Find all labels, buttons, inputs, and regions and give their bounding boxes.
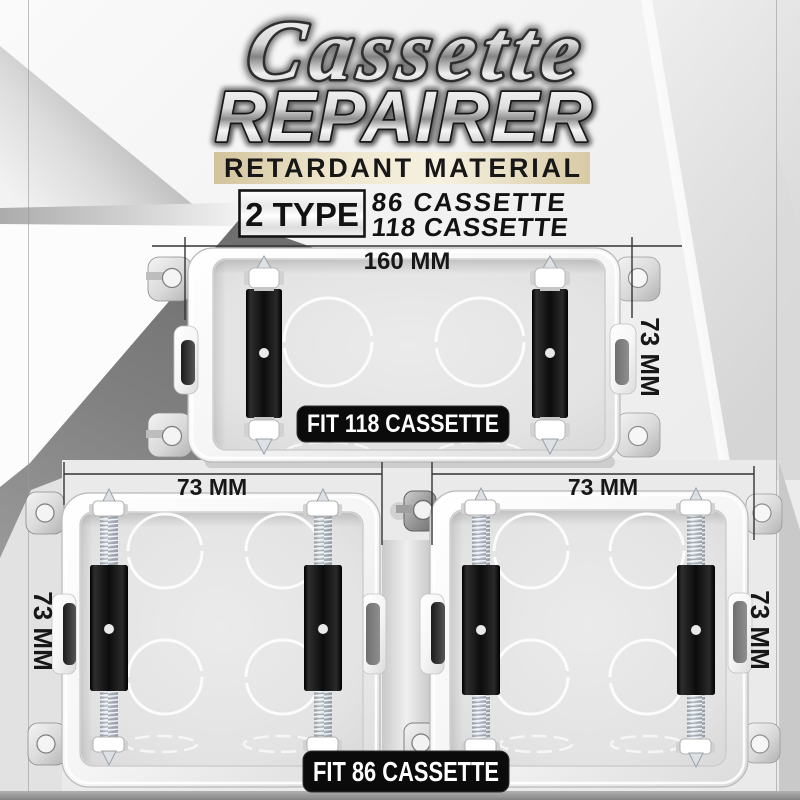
svg-text:FIT 86 CASSETTE: FIT 86 CASSETTE xyxy=(313,756,499,787)
svg-text:73 MM: 73 MM xyxy=(635,317,665,396)
svg-text:118 CASSETTE: 118 CASSETTE xyxy=(370,212,569,242)
svg-text:73 MM: 73 MM xyxy=(28,591,58,670)
svg-text:FIT 118 CASSETTE: FIT 118 CASSETTE xyxy=(307,410,499,438)
svg-text:73 MM: 73 MM xyxy=(745,590,775,669)
svg-text:73 MM: 73 MM xyxy=(177,474,247,500)
svg-text:2 TYPE: 2 TYPE xyxy=(245,196,359,233)
svg-text:RETARDANT MATERIAL: RETARDANT MATERIAL xyxy=(224,153,580,183)
svg-text:REPAIRER: REPAIRER xyxy=(215,78,593,157)
svg-text:160 MM: 160 MM xyxy=(364,248,451,275)
svg-text:73 MM: 73 MM xyxy=(568,474,638,500)
